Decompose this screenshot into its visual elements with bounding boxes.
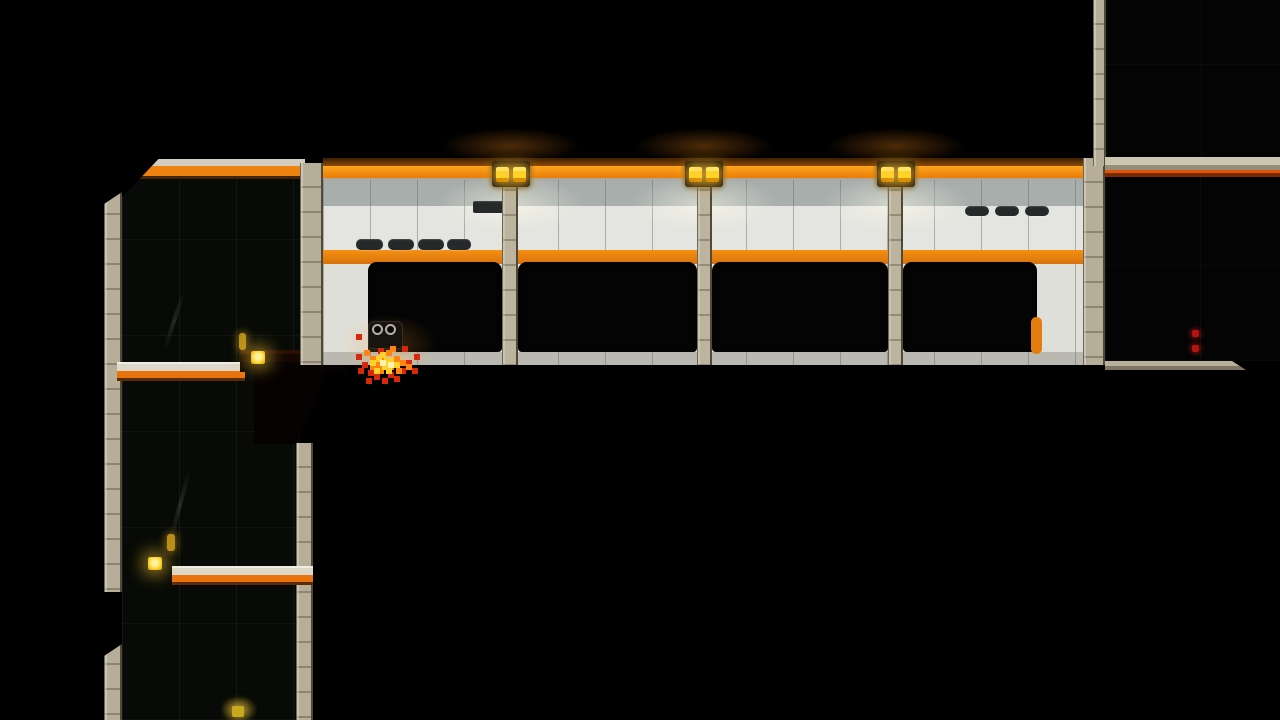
upper-right-floor-red-trim xyxy=(1105,170,1280,177)
lamp-bulb-icon xyxy=(496,167,509,182)
ceiling-lamp-fixture xyxy=(492,161,530,187)
ceiling-lamp-fixture xyxy=(685,161,723,187)
wall-light-bright xyxy=(148,557,162,570)
lamp-halo xyxy=(826,128,966,164)
window-opening-2 xyxy=(518,262,697,352)
lamp-halo xyxy=(634,128,774,164)
player-character xyxy=(368,321,403,349)
corridor-pillar xyxy=(697,166,712,365)
wall-vent xyxy=(1025,206,1049,216)
ceiling-lamp-fixture xyxy=(877,161,915,187)
wall-light-dim xyxy=(167,534,175,551)
flame-layer-core xyxy=(356,334,362,340)
platform-lower xyxy=(172,566,313,585)
wall-light-dim xyxy=(239,333,246,350)
goggles-icon xyxy=(385,324,396,335)
lamp-halo xyxy=(441,128,581,164)
upper-right-room xyxy=(1106,0,1280,160)
tower-left-column-lower xyxy=(104,640,122,720)
corridor-pillar xyxy=(888,166,903,365)
lamp-bulb-icon xyxy=(689,167,702,182)
bottom-glow-core xyxy=(232,706,244,717)
lamp-bulb-icon xyxy=(898,167,911,182)
wall-vent xyxy=(388,239,414,250)
corridor-left-column xyxy=(300,163,323,365)
wall-vent xyxy=(995,206,1019,216)
upper-right-column xyxy=(1093,0,1106,166)
wall-vent xyxy=(418,239,444,250)
tower-left-column xyxy=(104,190,122,592)
wall-vent xyxy=(447,239,471,250)
game-viewport[interactable] xyxy=(0,0,1280,720)
window-opening-4 xyxy=(903,262,1037,352)
red-indicator-light xyxy=(1192,330,1199,337)
dark-ledge-mass xyxy=(254,372,324,444)
platform-upper xyxy=(117,362,245,381)
floor-fire-reflection xyxy=(350,352,430,365)
goggles-icon xyxy=(372,324,383,335)
ramp-ledge xyxy=(1105,361,1246,370)
window-opening-3 xyxy=(712,262,888,352)
corridor-right-column xyxy=(1083,158,1105,365)
wall-light-bright xyxy=(251,351,265,364)
wall-vent xyxy=(356,239,383,250)
lamp-bulb-icon xyxy=(706,167,719,182)
lamp-bulb-icon xyxy=(513,167,526,182)
corridor-pillar xyxy=(502,166,518,365)
wall-vent xyxy=(965,206,989,216)
lamp-bulb-icon xyxy=(881,167,894,182)
upper-right-floor xyxy=(1105,157,1280,170)
red-indicator-light xyxy=(1192,345,1199,352)
orange-handle xyxy=(1031,317,1042,354)
